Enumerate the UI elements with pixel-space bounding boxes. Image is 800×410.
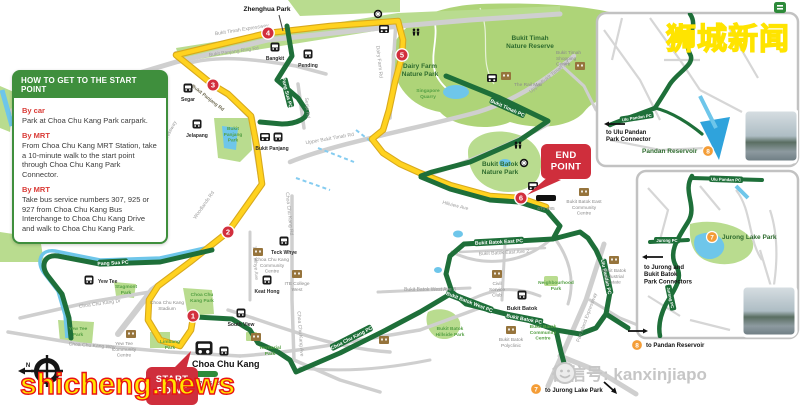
park-connector-map: Pang Sua PC Pang Sua PC Bukit Timah PC B… — [0, 0, 800, 410]
mrt-station-icon — [193, 120, 202, 129]
station-label: Teck Whye — [271, 250, 297, 256]
svg-text:7: 7 — [710, 234, 714, 241]
building-icon — [579, 188, 589, 196]
road-label: Dairy Farm Rd — [374, 45, 383, 78]
mrt-station-icon — [518, 291, 527, 300]
station-label: Segar — [181, 97, 195, 103]
bus-service-plate — [536, 195, 556, 201]
reservoir-label: Pandan Reservoir — [642, 148, 698, 155]
bus-icon — [379, 25, 389, 33]
watermark-shicheng: shicheng.news — [20, 368, 235, 402]
photo-thumbnail-pandan — [744, 110, 798, 162]
how-to-get-info-box: HOW TO GET TO THE START POINT By car Par… — [12, 70, 168, 244]
place-label: Bukit Batok EastCommunityCentre — [566, 199, 602, 217]
building-icon — [251, 333, 261, 341]
info-box-title: HOW TO GET TO THE START POINT — [14, 72, 166, 98]
park-label: NeighbourhoodPark — [538, 280, 574, 292]
route-label: Bukit Batok East PC — [475, 238, 524, 247]
watermark-chinese: 狮城新闻 — [666, 14, 790, 58]
building-icon — [126, 330, 136, 338]
mrt-station-icon — [263, 276, 272, 285]
place-label: Bukit BatokCommunityCentre — [530, 324, 557, 342]
mrt-station-icon — [271, 43, 280, 52]
info-body-by-mrt: From Choa Chu Kang MRT Station, take a 1… — [22, 141, 158, 180]
building-icon — [379, 336, 389, 344]
bus-numbers: 670 985 — [537, 206, 555, 212]
direction-note: to Pandan Reservoir — [646, 343, 705, 349]
svg-text:2: 2 — [226, 228, 230, 237]
route-label: Ulu Pandan PC — [711, 176, 741, 182]
building-icon — [253, 248, 263, 256]
bus-icon — [260, 133, 270, 141]
mrt-station-icon — [274, 133, 283, 142]
viewpoint-icon — [520, 159, 528, 167]
station-label: Yew Tee — [98, 279, 118, 285]
place-label: Choa Chu KangCommunityCentre — [255, 257, 289, 275]
mrt-station-icon — [280, 237, 289, 246]
road-label: Choa Chu Kang Way — [69, 341, 117, 350]
viewpoint-icon — [374, 10, 382, 18]
park-label: Dairy FarmNature Park — [402, 63, 439, 78]
svg-text:6: 6 — [519, 194, 523, 203]
mrt-station-icon — [220, 347, 229, 356]
svg-text:8: 8 — [635, 342, 639, 349]
park-label: Bukit BatokHillside Park — [436, 326, 465, 338]
bus-interchange-icon — [196, 341, 213, 355]
park-label: Zhenghua Park — [244, 6, 291, 13]
station-label: Bangkit — [266, 56, 285, 62]
road-label: Bukit Batok West Ave 3 — [404, 287, 456, 293]
marker-7-bottom: 7 — [531, 384, 542, 395]
road-label: Woodlands Rd — [192, 190, 216, 220]
route-label: Jurong PC — [656, 238, 677, 243]
marker-1: 1 — [187, 310, 199, 322]
building-icon — [506, 326, 516, 334]
wechat-smiley-icon — [552, 360, 578, 386]
station-label: Bukit Panjang — [255, 146, 288, 152]
marker-8: 8 — [703, 146, 714, 157]
place-label: Bukit BatokPolyclinic — [499, 337, 524, 349]
svg-text:3: 3 — [211, 81, 215, 90]
marker-7: 7 — [707, 232, 718, 243]
corner-badge-icon — [774, 2, 786, 13]
mrt-station-icon — [304, 50, 313, 59]
station-label: Keat Hong — [255, 289, 280, 295]
info-body-by-car: Park at Choa Chu Kang Park carpark. — [22, 116, 158, 126]
svg-text:8: 8 — [706, 148, 710, 155]
info-body-by-bus: Take bus service numbers 307, 925 or 927… — [22, 195, 158, 234]
building-icon — [492, 270, 502, 278]
info-heading-by-car: By car — [22, 106, 158, 115]
station-label: Bukit Batok — [507, 306, 539, 312]
route-label: Pang Sua PC — [97, 260, 129, 268]
info-heading-by-bus: By MRT — [22, 185, 158, 194]
park-label: Choa ChuKang Park — [190, 292, 214, 304]
info-heading-by-mrt: By MRT — [22, 131, 158, 140]
marker-6: 6 — [515, 192, 527, 204]
park-label: LimbangPark — [160, 339, 180, 351]
mrt-station-icon — [184, 84, 193, 93]
park-label: Bukit TimahNature Reserve — [506, 35, 554, 50]
marker-3: 3 — [207, 79, 219, 91]
place-label: Yew TeeCommunityCentre — [112, 341, 137, 359]
marker-8-bottom: 8 — [632, 340, 643, 351]
watermark-wechat: 微信号: kanxinjiapo — [552, 360, 707, 385]
place-label: The Rail Mall — [514, 82, 542, 88]
marker-2: 2 — [222, 226, 234, 238]
bus-icon — [487, 74, 497, 82]
svg-text:1: 1 — [191, 312, 195, 321]
building-icon — [501, 72, 511, 80]
marker-4: 4 — [262, 27, 274, 39]
direction-note: to Jurong Lake Park — [545, 388, 603, 394]
marker-5: 5 — [396, 49, 408, 61]
building-icon — [609, 256, 619, 264]
station-label: South View — [228, 322, 255, 328]
road-label: Hillview Ave — [442, 200, 469, 212]
direction-note: to Ulu PandanPark Connector — [606, 130, 651, 143]
place-label: Choa Chu KangStadium — [150, 300, 184, 312]
mrt-station-icon — [85, 276, 94, 285]
park-label: Bukit BatokNature Park — [482, 161, 519, 176]
svg-text:5: 5 — [400, 51, 404, 60]
jurong-lake-park-label: Jurong Lake Park — [722, 234, 777, 241]
station-label: Pending — [298, 63, 318, 69]
building-icon — [292, 270, 302, 278]
inset-jurong: Ulu Pandan PC Jurong PC Jurong PC to Jur… — [637, 171, 798, 338]
photo-thumbnail-jurong — [742, 286, 796, 336]
svg-text:7: 7 — [534, 386, 538, 393]
place-label: ITE CollegeWest — [284, 281, 309, 293]
building-icon — [575, 62, 585, 70]
station-label: Jelapang — [186, 133, 208, 139]
mrt-station-icon — [237, 309, 246, 318]
